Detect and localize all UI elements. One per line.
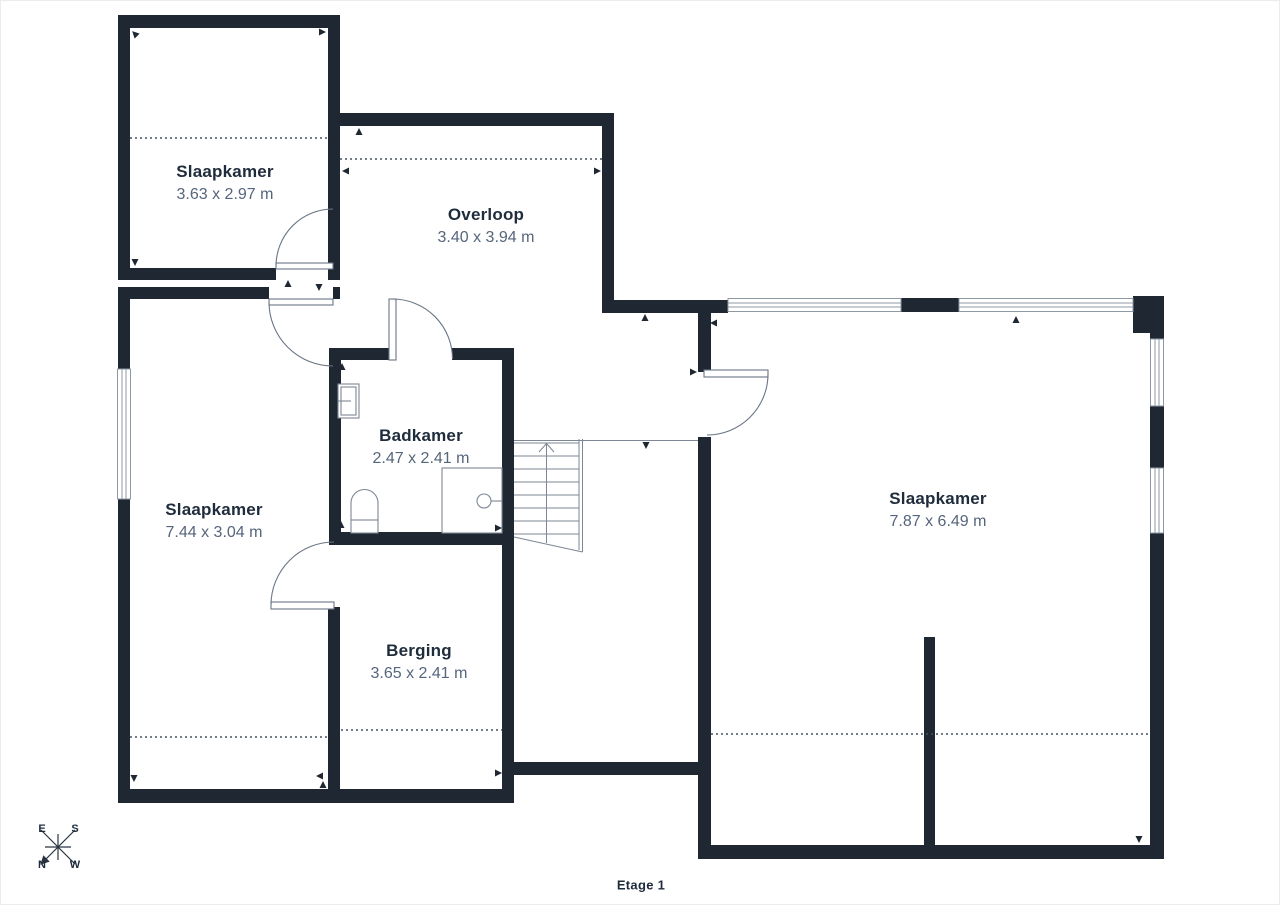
compass-south-label: S [71, 823, 78, 835]
window-icon [959, 299, 1133, 312]
window-icon [1151, 339, 1164, 406]
door-swing [276, 209, 333, 269]
compass-west-label: W [70, 859, 80, 871]
walls [118, 15, 1164, 859]
window-icon [728, 299, 901, 312]
dashed-measure-lines [130, 138, 1150, 737]
shower-icon [442, 468, 502, 533]
windows [118, 299, 1164, 534]
floorplan-drawing [1, 1, 1280, 905]
washbasin-icon [338, 384, 359, 418]
floor-title: Etage 1 [617, 878, 665, 893]
compass-north-label: N [38, 859, 46, 871]
stairs-up-arrow [539, 444, 554, 544]
door-swing [704, 370, 768, 435]
door-swing [389, 299, 453, 360]
window-icon [1151, 468, 1164, 533]
floorplan-page: Slaapkamer 3.63 x 2.97 m Overloop 3.40 x… [0, 0, 1280, 905]
door-swing [271, 542, 334, 609]
compass-east-label: E [38, 823, 45, 835]
measure-arrows [130, 29, 1151, 844]
toilet-icon [351, 490, 378, 534]
bathroom-fixtures [338, 384, 502, 533]
door-swing [269, 299, 333, 366]
window-icon [118, 369, 131, 499]
stairs-icon [514, 439, 698, 552]
